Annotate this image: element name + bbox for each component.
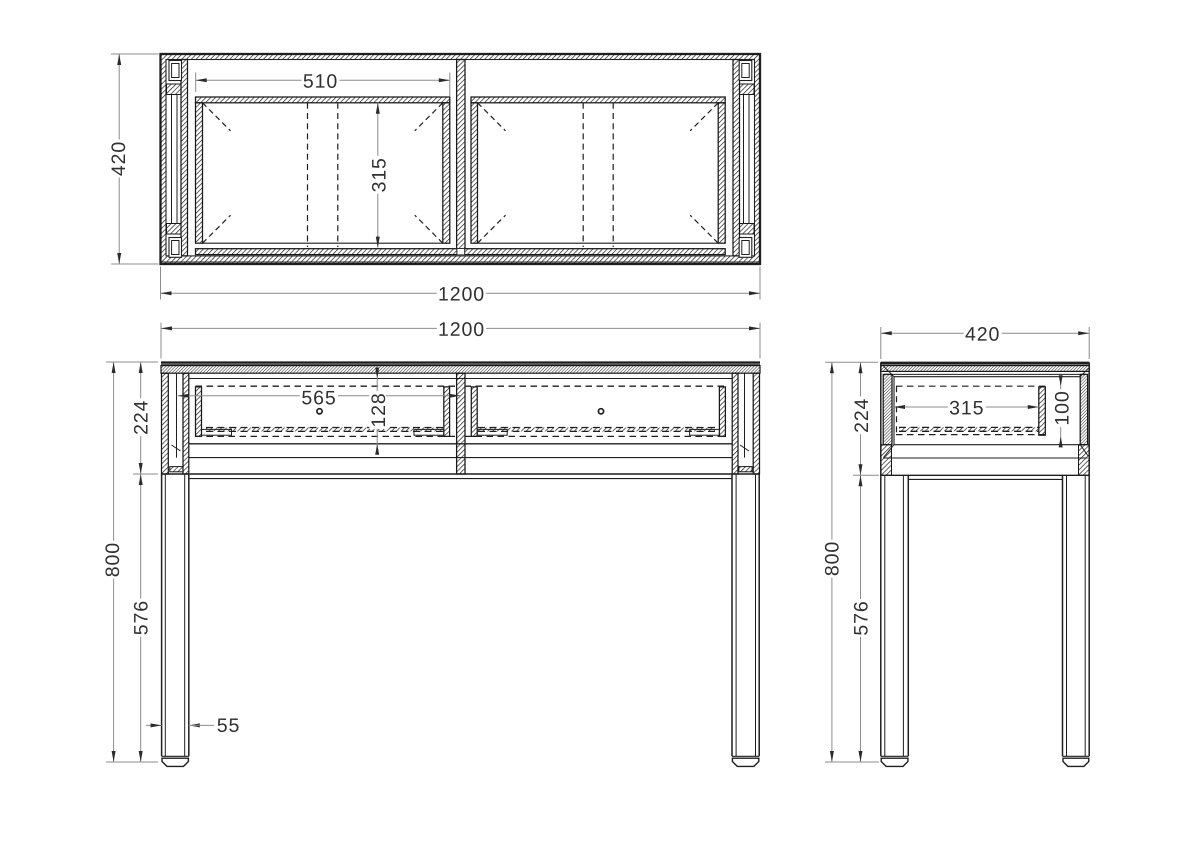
svg-text:1200: 1200	[438, 283, 485, 305]
svg-text:576: 576	[850, 600, 872, 635]
svg-text:420: 420	[108, 141, 130, 176]
svg-text:800: 800	[102, 542, 124, 577]
svg-text:565: 565	[301, 387, 336, 409]
svg-text:224: 224	[851, 398, 873, 433]
svg-text:800: 800	[822, 541, 844, 576]
svg-text:315: 315	[368, 157, 390, 192]
svg-text:315: 315	[949, 397, 984, 419]
svg-text:510: 510	[303, 71, 338, 93]
svg-text:420: 420	[965, 324, 1000, 346]
svg-text:576: 576	[130, 600, 152, 635]
svg-text:1200: 1200	[438, 319, 485, 341]
svg-text:55: 55	[217, 715, 241, 737]
svg-text:128: 128	[368, 392, 390, 427]
svg-text:224: 224	[130, 400, 152, 435]
svg-text:100: 100	[1051, 390, 1073, 425]
